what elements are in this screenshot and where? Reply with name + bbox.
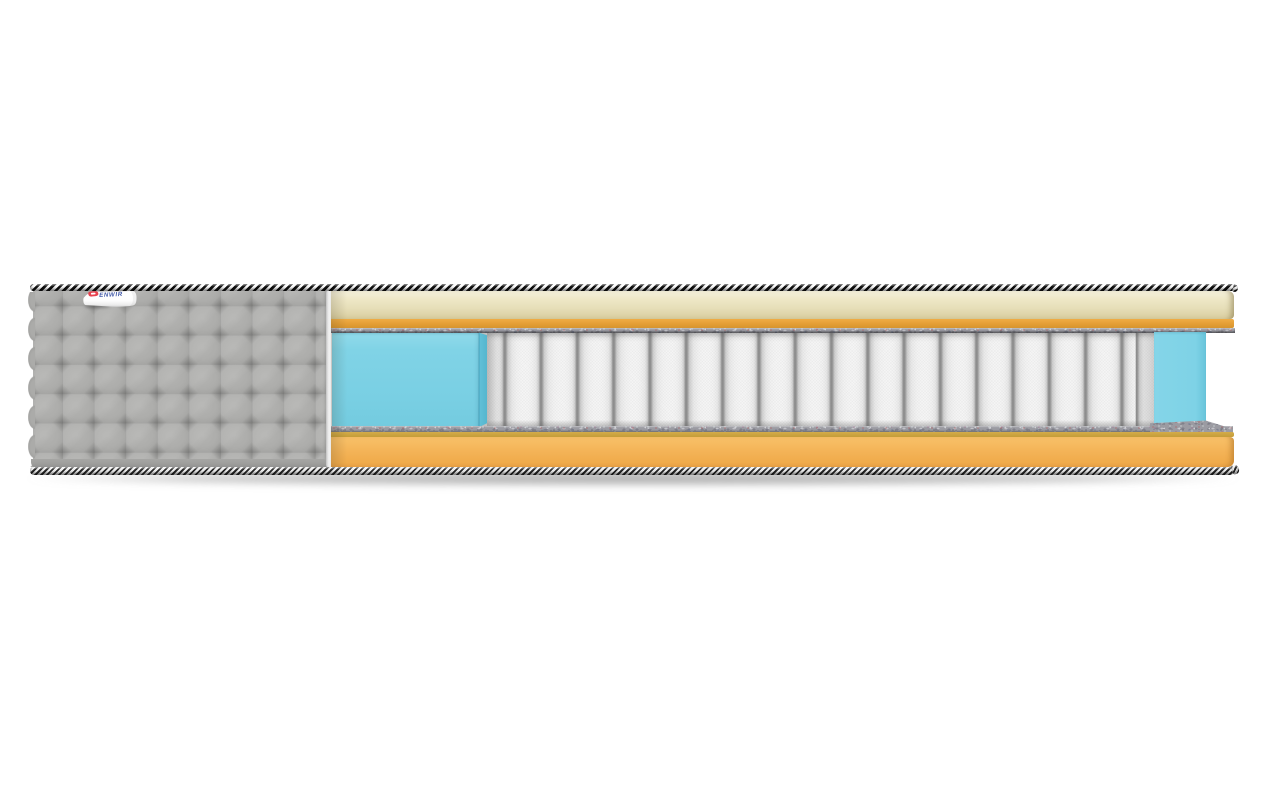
svg-text:ENWIR: ENWIR xyxy=(99,291,123,299)
